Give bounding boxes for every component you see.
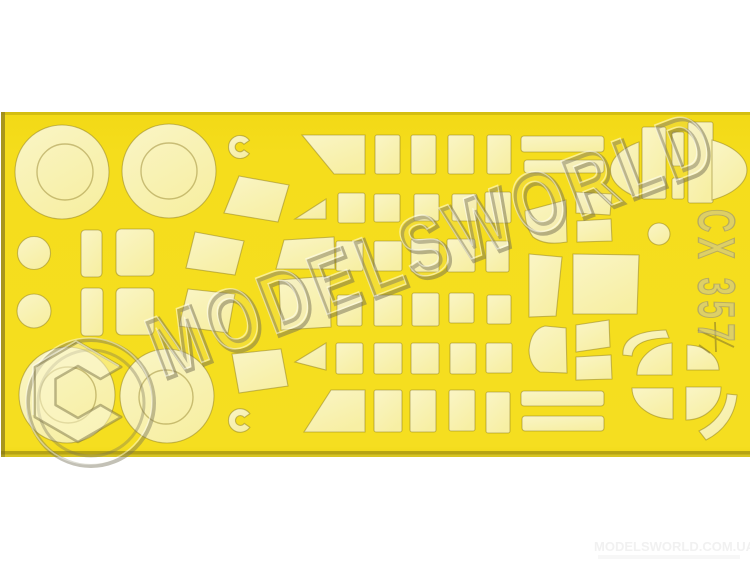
- svg-text:MODELSWORLD.COM.UA: MODELSWORLD.COM.UA: [594, 539, 750, 554]
- svg-text:CX 357: CX 357: [686, 209, 744, 346]
